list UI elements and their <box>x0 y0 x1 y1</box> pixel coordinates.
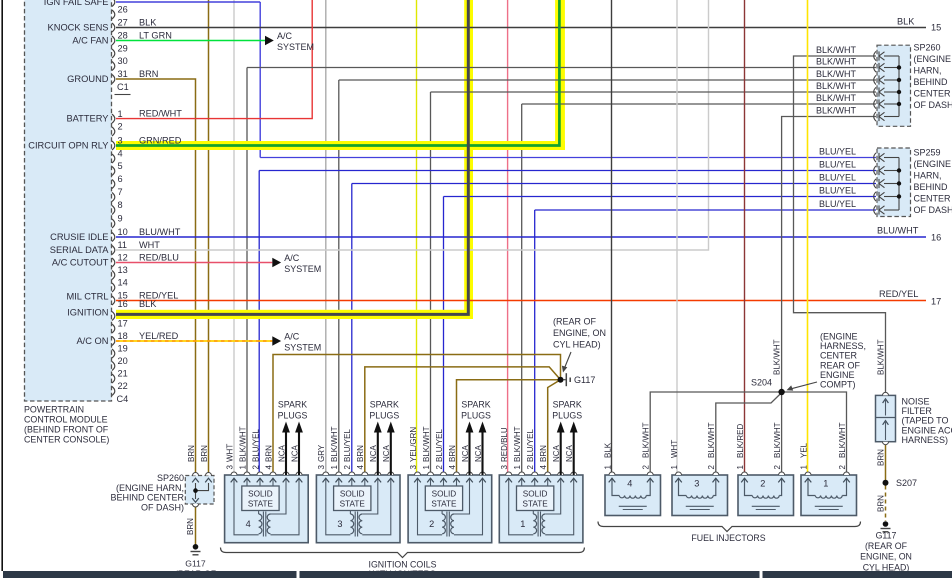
svg-text:4: 4 <box>118 149 123 159</box>
svg-text:PLUGS: PLUGS <box>278 411 308 421</box>
svg-text:1: 1 <box>513 465 522 470</box>
svg-text:1: 1 <box>603 465 612 470</box>
svg-text:BLK/WHT: BLK/WHT <box>773 422 782 458</box>
svg-text:PLUGS: PLUGS <box>369 411 399 421</box>
svg-text:IGNITION COILS: IGNITION COILS <box>369 560 437 570</box>
svg-text:13: 13 <box>118 265 128 275</box>
svg-text:4: 4 <box>246 519 251 529</box>
svg-text:MIL CTRL: MIL CTRL <box>66 292 108 302</box>
svg-text:BRN: BRN <box>876 449 885 466</box>
svg-text:KNOCK SENS: KNOCK SENS <box>48 23 109 33</box>
svg-text:3: 3 <box>337 519 342 529</box>
svg-text:BLU/WHT: BLU/WHT <box>139 227 181 237</box>
svg-text:CENTER: CENTER <box>914 89 952 99</box>
svg-text:HARNESS,: HARNESS, <box>820 341 866 351</box>
svg-text:A/C: A/C <box>284 253 300 263</box>
svg-text:29: 29 <box>118 44 128 54</box>
svg-text:27: 27 <box>118 18 128 28</box>
svg-text:COMPT): COMPT) <box>820 380 856 390</box>
svg-text:G117: G117 <box>876 531 897 541</box>
svg-text:22: 22 <box>118 381 128 391</box>
svg-text:BRN: BRN <box>187 445 196 462</box>
svg-text:(ENGINE: (ENGINE <box>820 332 858 342</box>
svg-text:S207: S207 <box>896 478 917 488</box>
svg-text:STATE: STATE <box>431 500 457 509</box>
svg-text:C4: C4 <box>117 394 129 404</box>
svg-text:RED/BLU: RED/BLU <box>500 427 509 462</box>
svg-text:3: 3 <box>500 465 509 470</box>
svg-text:SYSTEM: SYSTEM <box>284 343 321 353</box>
svg-text:2: 2 <box>707 465 716 470</box>
svg-text:14: 14 <box>118 278 128 288</box>
svg-text:CYL HEAD): CYL HEAD) <box>553 340 601 350</box>
svg-text:BLU/YEL: BLU/YEL <box>819 186 856 196</box>
svg-text:2: 2 <box>118 122 123 132</box>
svg-text:S204: S204 <box>751 378 772 388</box>
svg-text:SPARK: SPARK <box>278 400 307 410</box>
svg-text:3: 3 <box>694 479 699 489</box>
svg-text:8: 8 <box>118 200 123 210</box>
svg-text:SOLID: SOLID <box>523 490 548 499</box>
svg-text:17: 17 <box>118 319 128 329</box>
svg-text:21: 21 <box>118 369 128 379</box>
svg-text:3: 3 <box>317 465 326 470</box>
svg-text:BLK: BLK <box>139 17 157 27</box>
svg-text:BEHIND: BEHIND <box>914 77 949 87</box>
svg-text:BLU/YEL: BLU/YEL <box>819 199 856 209</box>
svg-text:C1: C1 <box>117 82 129 92</box>
svg-text:31: 31 <box>118 69 128 79</box>
svg-text:20: 20 <box>118 356 128 366</box>
svg-text:BLK/WHT: BLK/WHT <box>838 422 847 458</box>
svg-text:BRN: BRN <box>200 445 209 462</box>
svg-text:BEHIND: BEHIND <box>914 182 949 192</box>
svg-text:BRN: BRN <box>356 445 365 462</box>
svg-text:OF DASH): OF DASH) <box>914 205 952 215</box>
svg-text:4: 4 <box>448 465 457 470</box>
svg-text:BLK: BLK <box>139 299 157 309</box>
svg-text:GROUND: GROUND <box>67 74 109 84</box>
svg-text:IGN FAIL SAFE: IGN FAIL SAFE <box>44 0 109 7</box>
svg-text:26: 26 <box>118 5 128 15</box>
svg-text:WHT: WHT <box>670 440 679 458</box>
svg-text:BLK/WHT: BLK/WHT <box>330 426 339 462</box>
svg-text:(BEHIND FRONT OF: (BEHIND FRONT OF <box>24 425 109 435</box>
svg-text:CYL HEAD): CYL HEAD) <box>863 562 910 572</box>
svg-text:SYSTEM: SYSTEM <box>284 264 321 274</box>
svg-text:NCA: NCA <box>461 444 470 462</box>
svg-text:GRY: GRY <box>317 444 326 462</box>
svg-text:BLU/WHT: BLU/WHT <box>877 226 919 236</box>
svg-text:ENGINE, ON: ENGINE, ON <box>553 328 606 338</box>
svg-text:BLK/WHT: BLK/WHT <box>816 93 857 103</box>
svg-text:1: 1 <box>670 465 679 470</box>
svg-text:BRN: BRN <box>876 495 885 512</box>
svg-text:PLUGS: PLUGS <box>461 411 491 421</box>
svg-text:ENGINE, ON: ENGINE, ON <box>860 552 912 562</box>
svg-text:BLK: BLK <box>603 442 612 458</box>
svg-text:BLU/YEL: BLU/YEL <box>819 173 856 183</box>
svg-text:HARNESS): HARNESS) <box>902 435 949 445</box>
svg-text:SPARK: SPARK <box>553 400 582 410</box>
svg-text:4: 4 <box>264 465 273 470</box>
svg-text:NCA: NCA <box>382 444 391 462</box>
svg-text:BLK/WHT: BLK/WHT <box>707 422 716 458</box>
svg-text:12: 12 <box>118 253 128 263</box>
svg-text:2: 2 <box>642 465 651 470</box>
svg-text:CONTROL MODULE: CONTROL MODULE <box>24 415 108 425</box>
svg-text:CIRCUIT OPN RLY: CIRCUIT OPN RLY <box>28 141 108 151</box>
svg-text:SYSTEM: SYSTEM <box>277 42 314 52</box>
svg-text:A/C CUTOUT: A/C CUTOUT <box>52 258 109 268</box>
svg-text:9: 9 <box>118 214 123 224</box>
svg-text:A/C: A/C <box>284 332 300 342</box>
svg-text:BLU/YEL: BLU/YEL <box>435 429 444 462</box>
svg-text:BLU/YEL: BLU/YEL <box>819 147 856 157</box>
svg-text:WHT: WHT <box>139 240 160 250</box>
svg-text:BRN: BRN <box>264 445 273 462</box>
svg-text:BLK/WHT: BLK/WHT <box>422 426 431 462</box>
svg-text:CENTER: CENTER <box>820 351 858 361</box>
svg-text:ENGINE ACC: ENGINE ACC <box>902 425 952 435</box>
svg-text:19: 19 <box>118 344 128 354</box>
svg-text:SOLID: SOLID <box>340 490 365 499</box>
svg-text:YEL/GRN: YEL/GRN <box>409 427 418 462</box>
svg-text:BLK/WHT: BLK/WHT <box>238 426 247 462</box>
svg-text:(REAR OF: (REAR OF <box>553 317 597 327</box>
svg-text:NCA: NCA <box>369 444 378 462</box>
svg-text:2: 2 <box>251 465 260 470</box>
svg-text:YEL: YEL <box>799 442 808 458</box>
svg-text:4: 4 <box>539 465 548 470</box>
svg-text:IGNITION: IGNITION <box>67 308 108 318</box>
svg-text:CENTER CONSOLE): CENTER CONSOLE) <box>24 435 109 445</box>
svg-text:CENTER: CENTER <box>914 194 952 204</box>
svg-text:28: 28 <box>118 31 128 41</box>
svg-text:1: 1 <box>520 519 525 529</box>
svg-text:(ENGINE HARN,: (ENGINE HARN, <box>116 483 184 493</box>
svg-text:(REAR OF: (REAR OF <box>865 541 908 551</box>
svg-text:A/C ON: A/C ON <box>76 336 108 346</box>
svg-text:3: 3 <box>409 465 418 470</box>
svg-text:SERIAL DATA: SERIAL DATA <box>50 245 110 255</box>
svg-text:NCA: NCA <box>474 444 483 462</box>
svg-text:GRN/RED: GRN/RED <box>139 135 182 145</box>
svg-text:SPARK: SPARK <box>370 400 399 410</box>
svg-text:2: 2 <box>838 465 847 470</box>
svg-text:STATE: STATE <box>523 500 549 509</box>
svg-text:SP259: SP259 <box>914 148 941 158</box>
svg-text:BRN: BRN <box>186 518 195 535</box>
svg-text:(ENGINE: (ENGINE <box>914 159 952 169</box>
svg-text:10: 10 <box>118 227 128 237</box>
svg-text:BLU/YEL: BLU/YEL <box>819 160 856 170</box>
svg-text:(TAPED TO: (TAPED TO <box>902 416 949 426</box>
svg-text:HARN,: HARN, <box>914 66 942 76</box>
svg-text:BLK/WHT: BLK/WHT <box>876 339 885 375</box>
svg-text:BLK/WHT: BLK/WHT <box>816 57 857 67</box>
svg-text:1: 1 <box>736 465 745 470</box>
svg-text:G117: G117 <box>574 375 595 385</box>
svg-text:4: 4 <box>627 479 632 489</box>
svg-text:BLK/WHT: BLK/WHT <box>513 426 522 462</box>
svg-text:3: 3 <box>118 136 123 146</box>
svg-text:BLK/WHT: BLK/WHT <box>816 69 857 79</box>
svg-text:2: 2 <box>343 465 352 470</box>
svg-text:BEHIND CENTER: BEHIND CENTER <box>110 493 184 503</box>
svg-text:NCA: NCA <box>290 444 299 462</box>
svg-text:2: 2 <box>760 479 765 489</box>
svg-text:FUEL INJECTORS: FUEL INJECTORS <box>691 533 765 543</box>
svg-text:YEL/RED: YEL/RED <box>139 331 179 341</box>
svg-text:2: 2 <box>435 465 444 470</box>
svg-text:HARN,: HARN, <box>914 171 942 181</box>
svg-text:BLK/WHT: BLK/WHT <box>773 339 782 375</box>
svg-text:11: 11 <box>118 240 128 250</box>
svg-text:A/C FAN: A/C FAN <box>72 36 108 46</box>
svg-text:NOISE: NOISE <box>902 397 930 407</box>
svg-text:LT GRN: LT GRN <box>139 30 172 40</box>
svg-text:FILTER: FILTER <box>902 406 933 416</box>
svg-text:NCA: NCA <box>552 444 561 462</box>
svg-text:PLUGS: PLUGS <box>552 411 582 421</box>
svg-text:BLK/WHT: BLK/WHT <box>816 106 857 116</box>
svg-text:BLK/RED: BLK/RED <box>736 424 745 458</box>
svg-text:OF DASH): OF DASH) <box>141 502 184 512</box>
svg-text:ENGINE: ENGINE <box>820 370 855 380</box>
svg-text:BATTERY: BATTERY <box>66 114 108 124</box>
svg-text:SPARK: SPARK <box>461 400 490 410</box>
svg-text:17: 17 <box>931 297 941 307</box>
svg-text:(ENGINE: (ENGINE <box>914 54 952 64</box>
svg-text:SP260: SP260 <box>914 43 941 53</box>
svg-text:BLK/WHT: BLK/WHT <box>642 422 651 458</box>
svg-text:1: 1 <box>118 109 123 119</box>
svg-text:STATE: STATE <box>340 500 366 509</box>
svg-text:1: 1 <box>330 465 339 470</box>
svg-text:A/C: A/C <box>277 31 293 41</box>
svg-text:RED/BLU: RED/BLU <box>139 252 179 262</box>
svg-text:1: 1 <box>238 465 247 470</box>
svg-text:6: 6 <box>118 174 123 184</box>
svg-text:BLK/WHT: BLK/WHT <box>816 81 857 91</box>
svg-text:1: 1 <box>422 465 431 470</box>
svg-text:5: 5 <box>118 161 123 171</box>
svg-text:2: 2 <box>773 465 782 470</box>
svg-text:BLU/YEL: BLU/YEL <box>343 429 352 462</box>
svg-text:REAR OF: REAR OF <box>820 360 861 370</box>
svg-text:1: 1 <box>799 465 808 470</box>
svg-text:SOLID: SOLID <box>432 490 457 499</box>
svg-text:CRUSIE IDLE: CRUSIE IDLE <box>50 232 108 242</box>
svg-text:BRN: BRN <box>139 69 158 79</box>
svg-text:WHT: WHT <box>225 444 234 462</box>
svg-text:OF DASH): OF DASH) <box>914 100 952 110</box>
svg-text:BLK: BLK <box>897 17 915 27</box>
svg-text:BRN: BRN <box>539 445 548 462</box>
svg-text:4: 4 <box>356 465 365 470</box>
svg-text:3: 3 <box>225 465 234 470</box>
svg-text:NCA: NCA <box>277 444 286 462</box>
svg-text:SOLID: SOLID <box>248 490 273 499</box>
svg-text:SP260: SP260 <box>157 473 184 483</box>
svg-text:RED/YEL: RED/YEL <box>879 289 918 299</box>
svg-text:NCA: NCA <box>565 444 574 462</box>
svg-text:BLK/WHT: BLK/WHT <box>816 45 857 55</box>
svg-text:BRN: BRN <box>448 445 457 462</box>
svg-text:RED/WHT: RED/WHT <box>139 108 182 118</box>
svg-text:BLU/YEL: BLU/YEL <box>251 429 260 462</box>
svg-text:30: 30 <box>118 56 128 66</box>
svg-text:15: 15 <box>931 23 941 33</box>
svg-text:POWERTRAIN: POWERTRAIN <box>24 405 84 415</box>
svg-text:STATE: STATE <box>248 500 274 509</box>
svg-text:1: 1 <box>823 479 828 489</box>
svg-text:2: 2 <box>429 519 434 529</box>
svg-text:16: 16 <box>118 299 128 309</box>
svg-text:7: 7 <box>118 187 123 197</box>
svg-text:16: 16 <box>931 233 941 243</box>
svg-text:18: 18 <box>118 331 128 341</box>
svg-text:G117: G117 <box>185 559 206 569</box>
svg-text:BLU/YEL: BLU/YEL <box>526 429 535 462</box>
svg-text:2: 2 <box>526 465 535 470</box>
